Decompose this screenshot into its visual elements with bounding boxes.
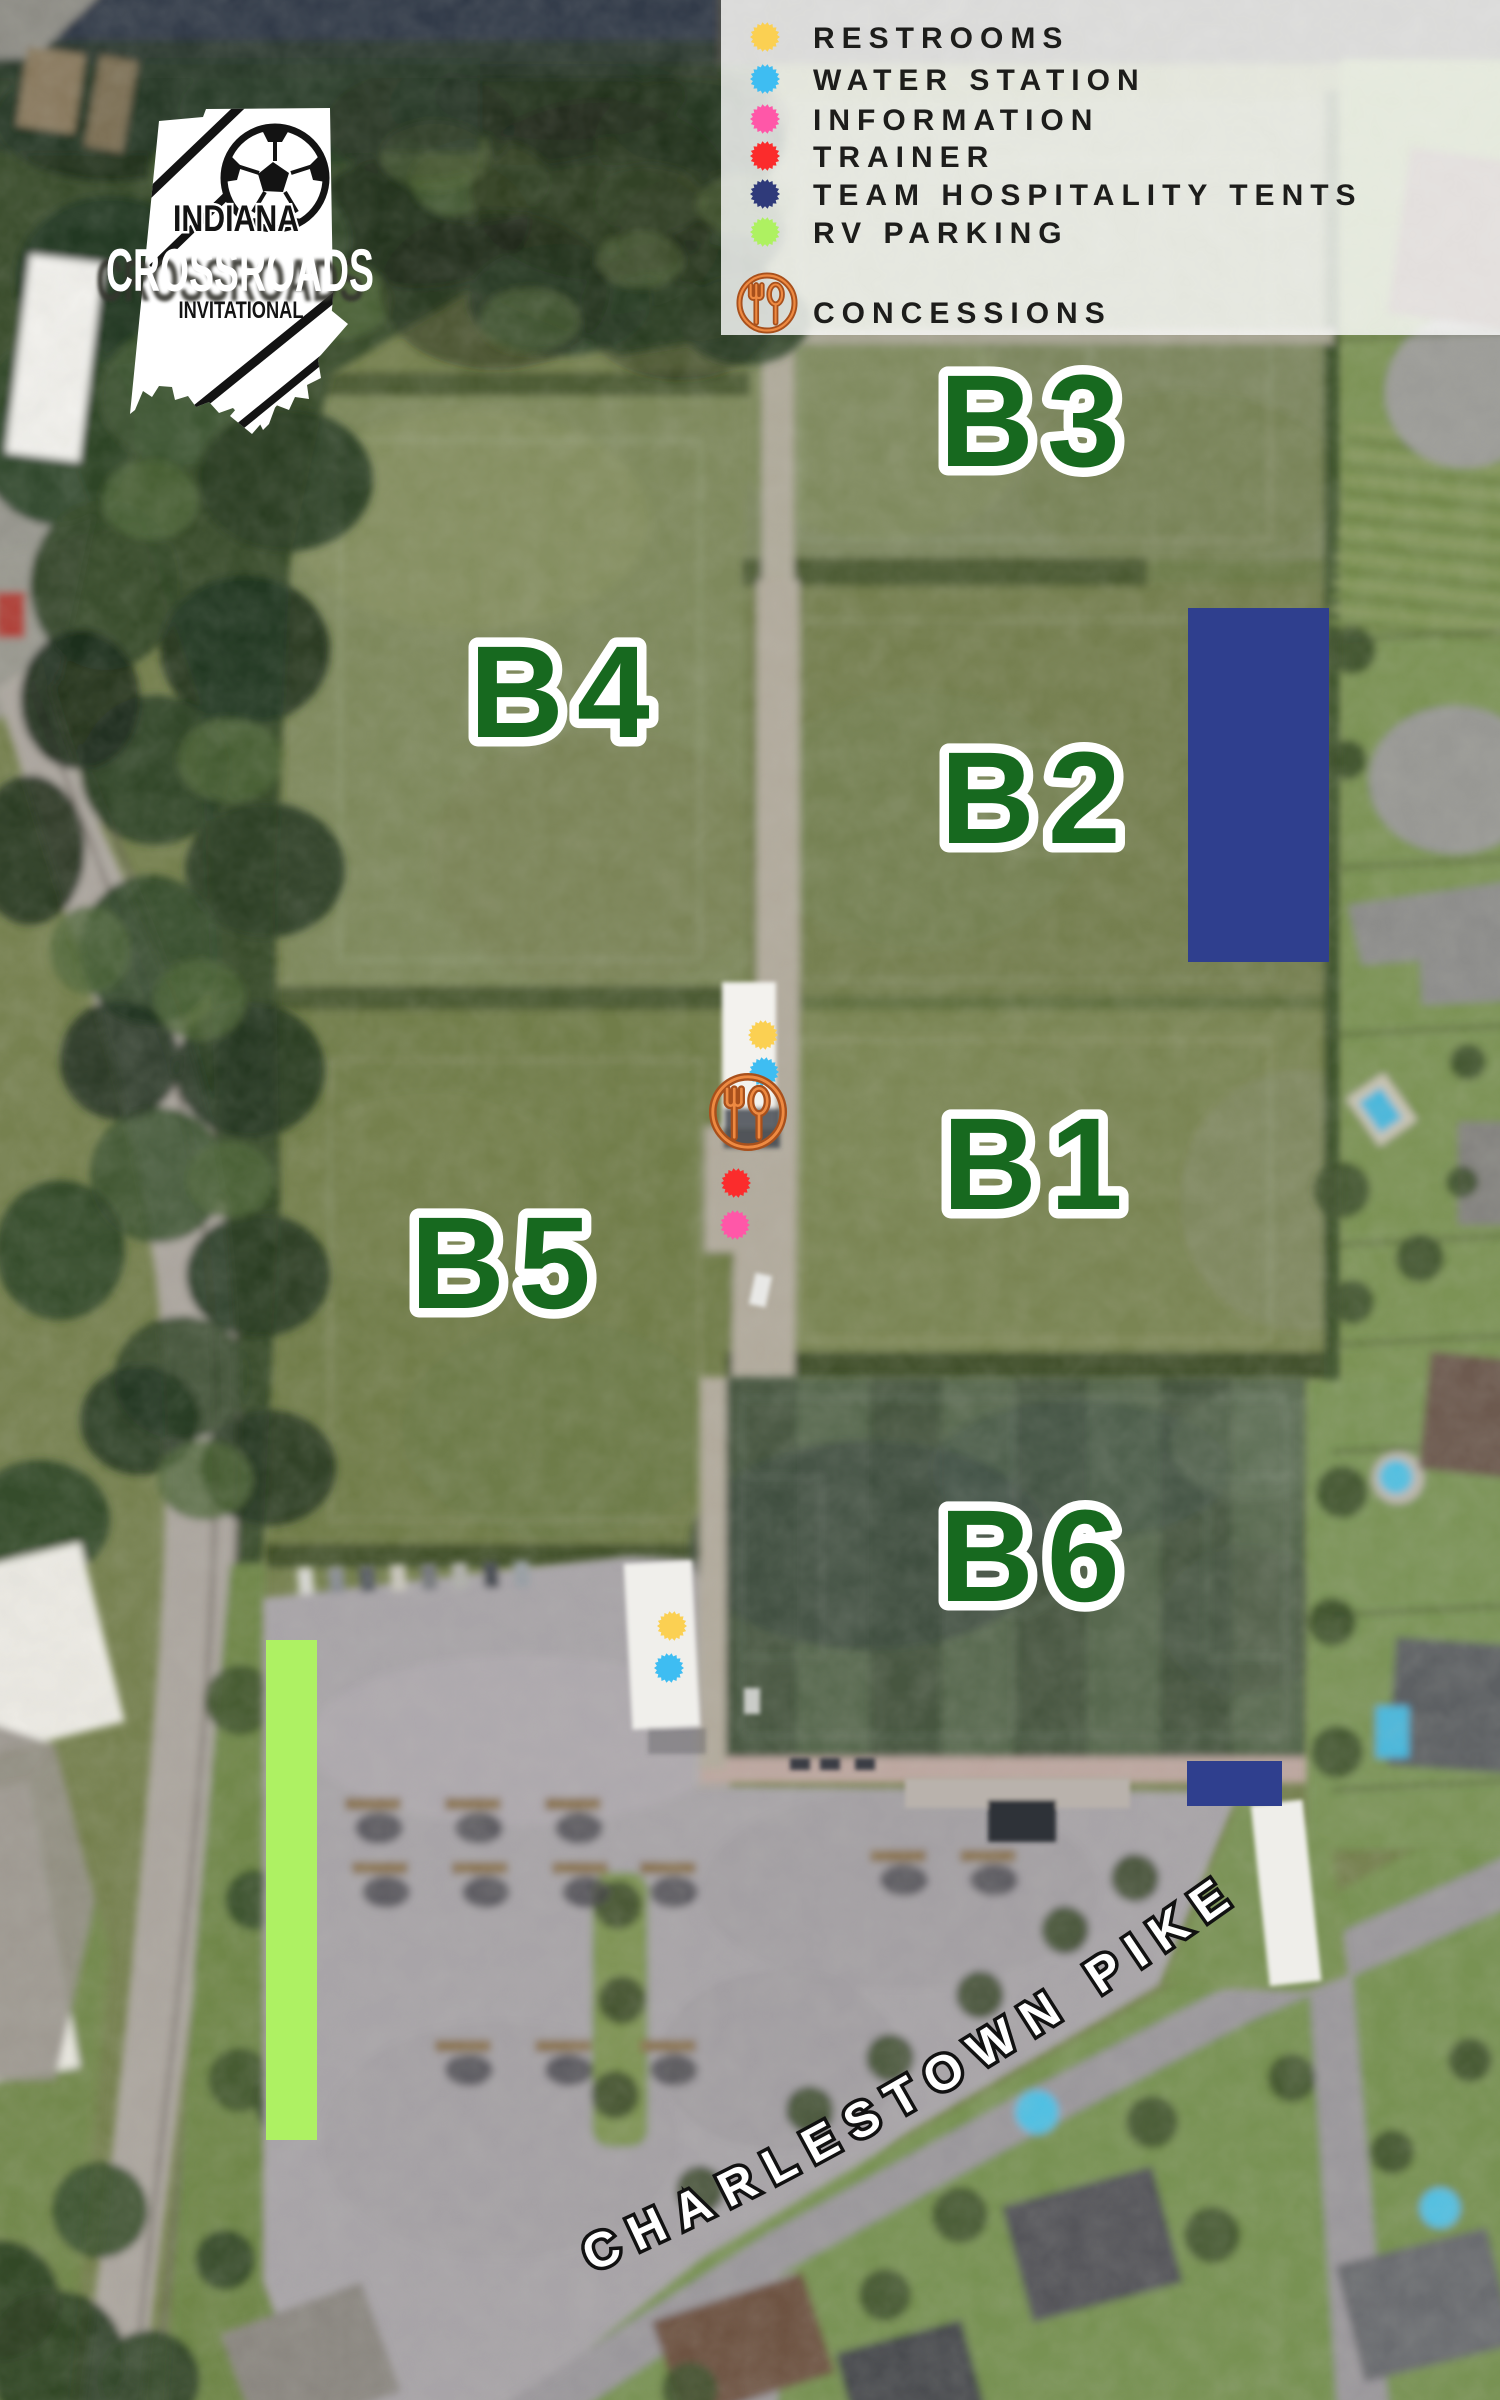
svg-text:RESTROOMS: RESTROOMS [813, 22, 1069, 55]
svg-text:RV PARKING: RV PARKING [813, 217, 1069, 250]
svg-text:B5: B5 [410, 1189, 603, 1336]
svg-text:CONCESSIONS: CONCESSIONS [813, 297, 1112, 330]
svg-text:CROSSROADS: CROSSROADS [106, 237, 374, 304]
svg-text:B1: B1 [942, 1090, 1135, 1237]
svg-text:INDIANA: INDIANA [173, 198, 299, 239]
svg-text:TRAINER: TRAINER [813, 141, 995, 174]
svg-text:INVITATIONAL: INVITATIONAL [179, 297, 304, 324]
svg-text:TEAM HOSPITALITY TENTS: TEAM HOSPITALITY TENTS [813, 179, 1363, 212]
svg-text:B2: B2 [940, 724, 1133, 871]
svg-text:B6: B6 [939, 1482, 1132, 1629]
svg-text:B4: B4 [469, 618, 662, 765]
svg-text:B3: B3 [939, 347, 1132, 494]
svg-text:WATER STATION: WATER STATION [813, 64, 1146, 97]
svg-text:INFORMATION: INFORMATION [813, 104, 1099, 137]
